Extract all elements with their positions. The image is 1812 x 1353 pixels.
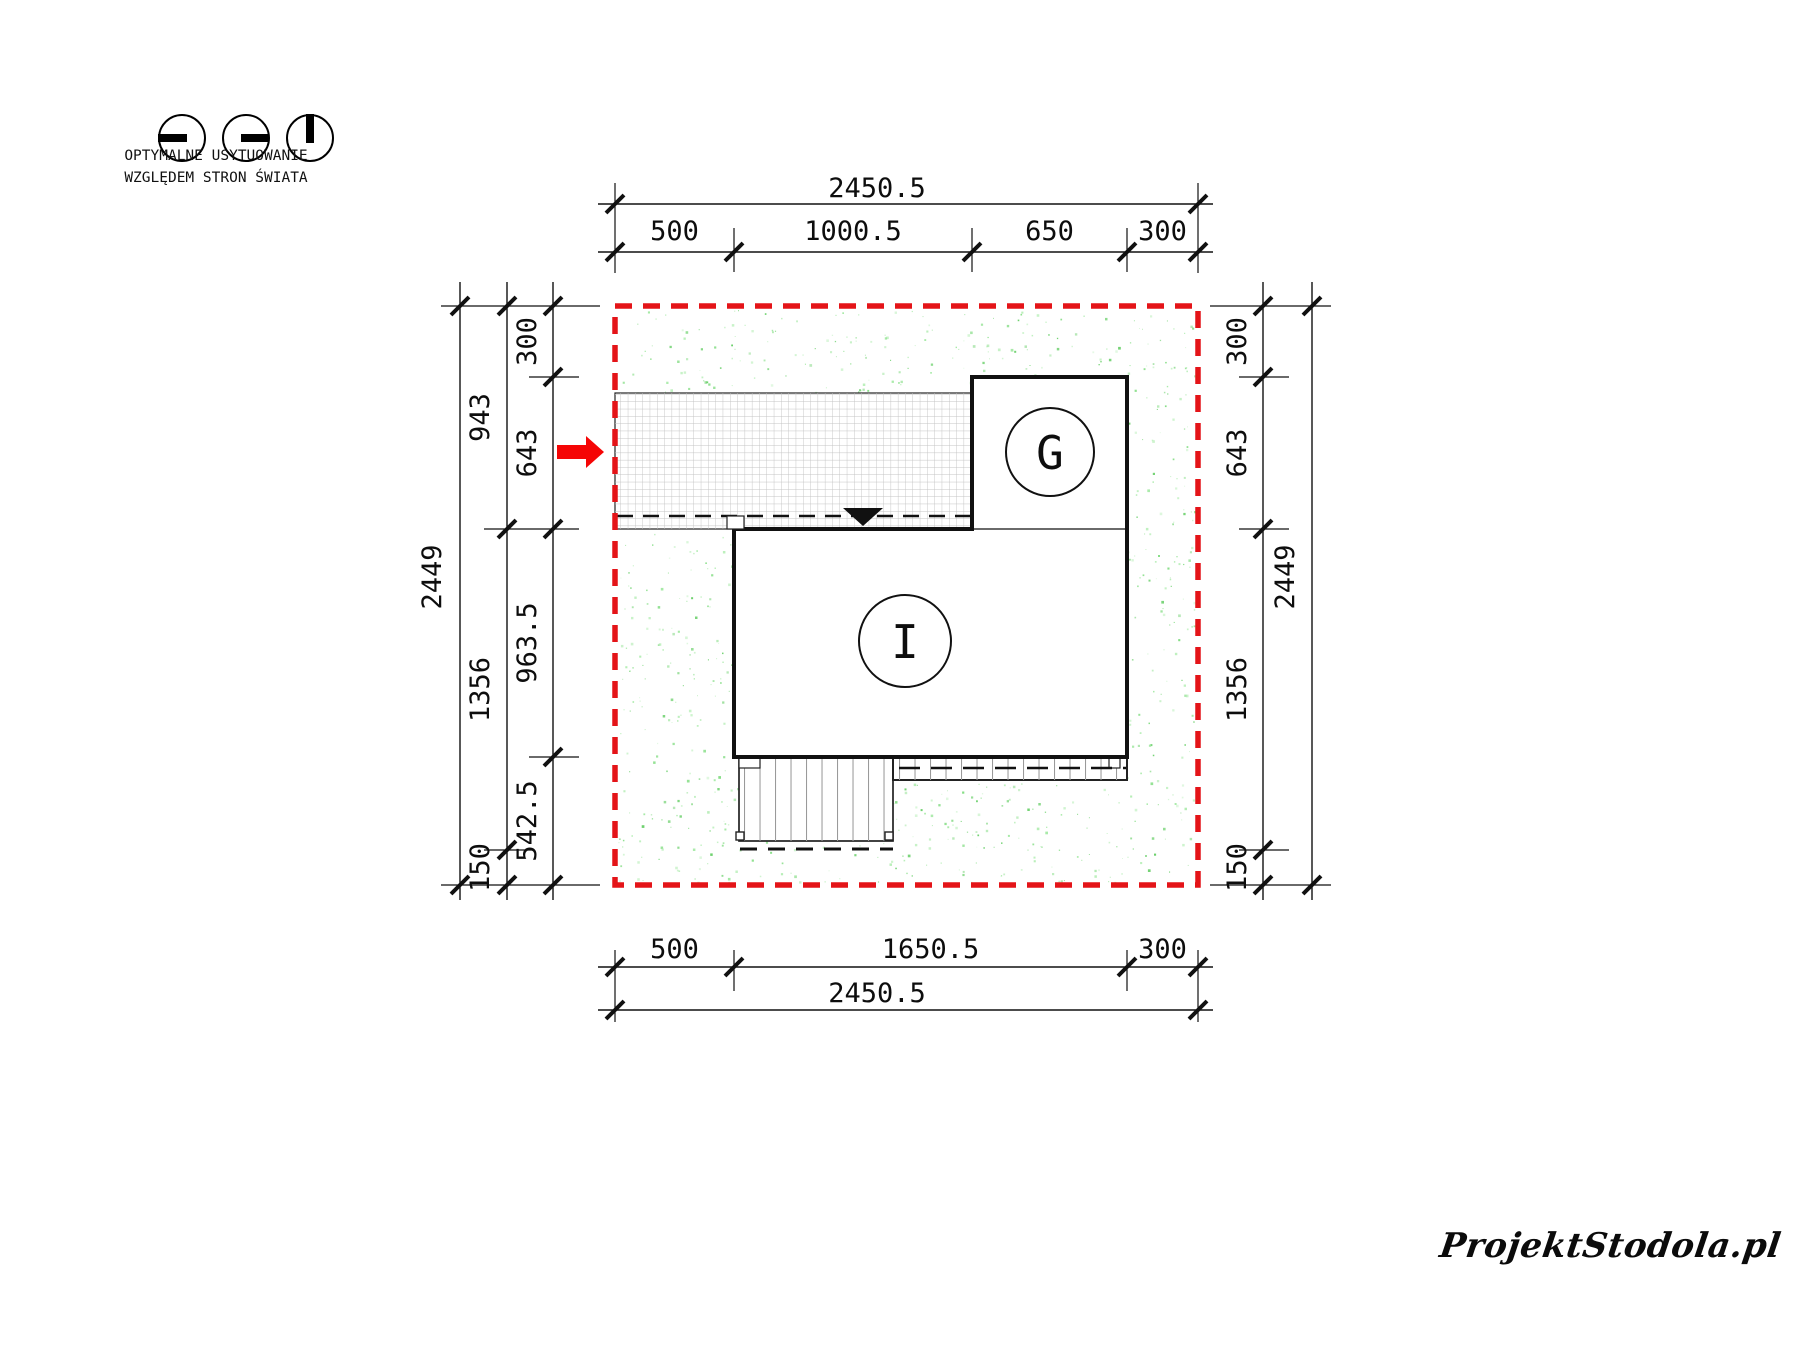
house-label: I <box>891 615 919 669</box>
driveway <box>615 393 972 529</box>
dim-top-segment: 300 <box>1138 216 1187 247</box>
dim-bottom-total: 2450.5 <box>828 978 926 1009</box>
terrace-strip <box>893 757 1127 780</box>
dim-top-segment: 1000.5 <box>804 216 902 247</box>
dim-top-segment: 650 <box>1025 216 1074 247</box>
dim-left-total: 2449 <box>417 544 448 609</box>
brand-watermark: ProjektStodola.pl <box>1437 1226 1703 1266</box>
site-plan-page: OPTYMALNE USYTUOWANIE WZGLĘDEM STRON ŚWI… <box>0 0 1812 1353</box>
dim-left-inner: 300 <box>512 317 543 366</box>
dim-right-inner: 643 <box>1222 429 1253 478</box>
dim-right-inner: 300 <box>1222 317 1253 366</box>
dim-left-inner: 643 <box>512 429 543 478</box>
dim-bottom-segment: 500 <box>650 934 699 965</box>
site-plan-drawing: GI2450.55001000.56503005001650.53002450.… <box>0 0 1812 1353</box>
dim-top-total: 2450.5 <box>828 173 926 204</box>
dim-left-inner: 963.5 <box>512 602 543 683</box>
entrance-arrow-icon <box>557 436 604 468</box>
dim-left-middle: 1356 <box>465 657 496 722</box>
dim-left-middle: 943 <box>465 393 496 442</box>
garage-label: G <box>1036 426 1064 480</box>
dim-top-segment: 500 <box>650 216 699 247</box>
dim-right-inner: 1356 <box>1222 657 1253 722</box>
dim-bottom-segment: 1650.5 <box>882 934 980 965</box>
terrace-deck <box>736 757 893 849</box>
dim-bottom-segment: 300 <box>1138 934 1187 965</box>
dim-right-total: 2449 <box>1270 544 1301 609</box>
